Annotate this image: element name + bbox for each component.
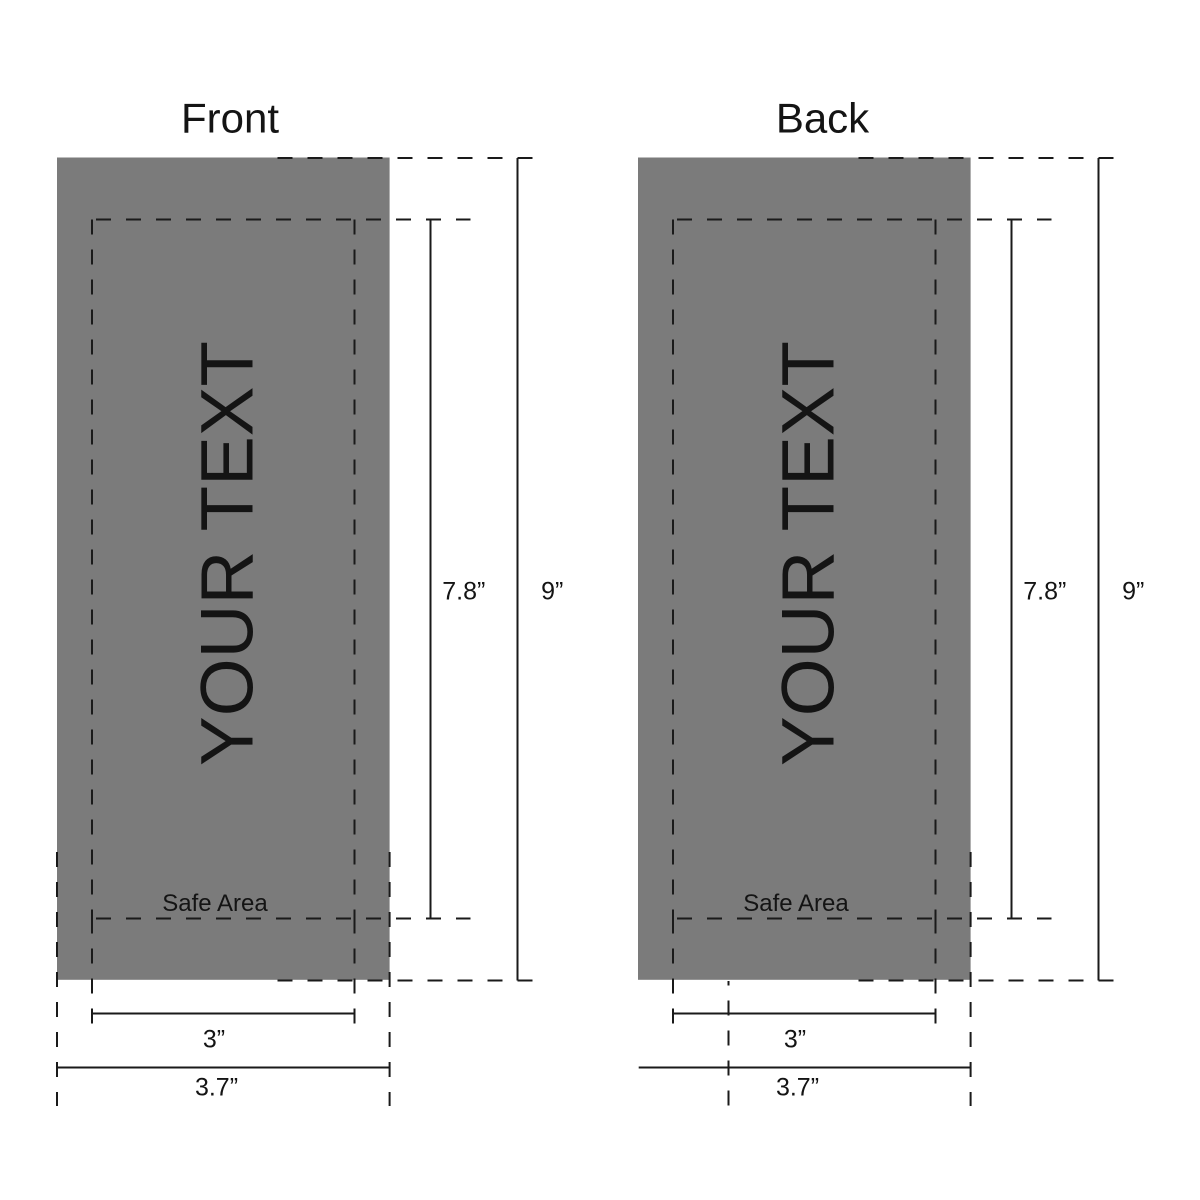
svg-text:Front: Front (181, 95, 279, 142)
svg-text:Safe Area: Safe Area (162, 890, 268, 917)
svg-text:3”: 3” (784, 1026, 806, 1054)
svg-text:7.8”: 7.8” (1023, 578, 1066, 606)
svg-text:Safe Area: Safe Area (743, 890, 849, 917)
svg-text:3.7”: 3.7” (776, 1074, 819, 1102)
svg-text:9”: 9” (1122, 578, 1144, 606)
svg-text:7.8”: 7.8” (442, 578, 485, 606)
svg-text:Back: Back (776, 95, 870, 142)
svg-text:3.7”: 3.7” (195, 1074, 238, 1102)
svg-text:YOUR TEXT: YOUR TEXT (767, 341, 850, 766)
svg-text:YOUR TEXT: YOUR TEXT (186, 341, 269, 766)
svg-text:3”: 3” (203, 1026, 225, 1054)
svg-text:9”: 9” (541, 578, 563, 606)
